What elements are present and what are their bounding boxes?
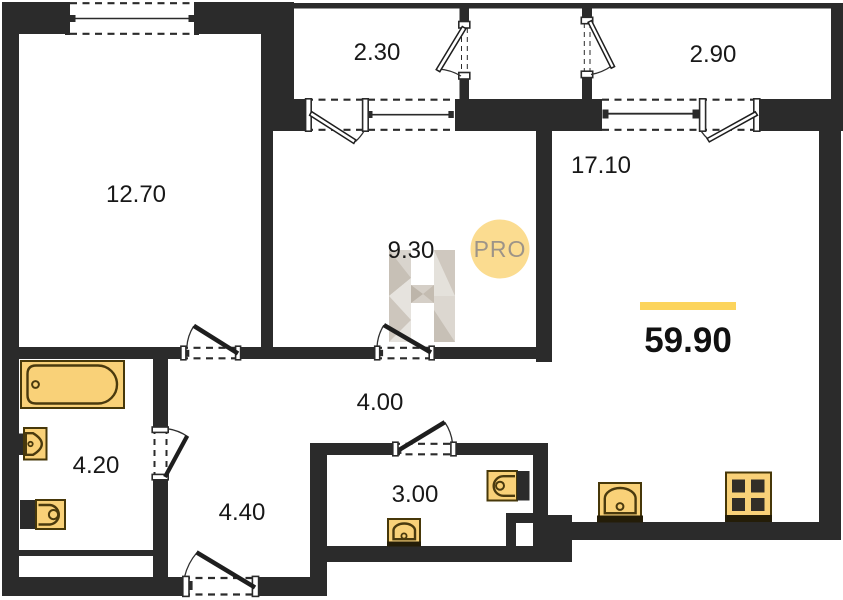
svg-text:4.40: 4.40 (219, 499, 266, 526)
svg-text:2.30: 2.30 (354, 39, 401, 66)
svg-text:9.30: 9.30 (388, 237, 435, 264)
svg-text:4.00: 4.00 (357, 389, 404, 416)
svg-text:17.10: 17.10 (571, 152, 631, 179)
svg-text:12.70: 12.70 (106, 181, 166, 208)
svg-text:59.90: 59.90 (644, 321, 732, 360)
svg-text:2.90: 2.90 (690, 41, 737, 68)
svg-text:3.00: 3.00 (392, 481, 439, 508)
svg-text:4.20: 4.20 (73, 452, 120, 479)
svg-text:PRO: PRO (474, 236, 527, 262)
